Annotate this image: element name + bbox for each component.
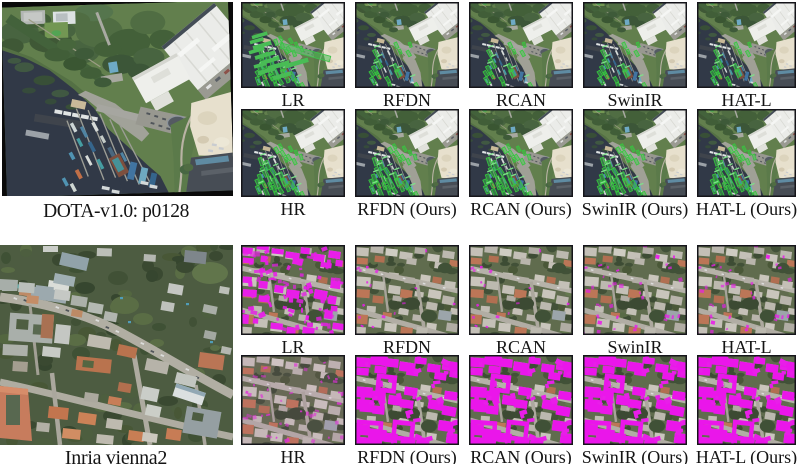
svg-text:RFDN (Ours): RFDN (Ours) [357, 447, 457, 464]
svg-text:HAT-L (Ours): HAT-L (Ours) [696, 447, 797, 464]
svg-text:SwinIR: SwinIR [607, 90, 662, 110]
svg-text:HAT-L (Ours): HAT-L (Ours) [696, 199, 797, 220]
svg-text:HAT-L: HAT-L [721, 90, 771, 110]
svg-text:RCAN (Ours): RCAN (Ours) [470, 199, 572, 220]
svg-text:HR: HR [280, 199, 305, 219]
svg-text:Inria vienna2: Inria vienna2 [65, 447, 167, 464]
svg-text:LR: LR [281, 90, 304, 110]
svg-text:HAT-L: HAT-L [721, 337, 771, 357]
svg-text:DOTA-v1.0: p0128: DOTA-v1.0: p0128 [43, 201, 189, 222]
svg-text:HR: HR [280, 447, 305, 464]
svg-text:RFDN: RFDN [383, 337, 431, 357]
svg-text:SwinIR: SwinIR [607, 337, 662, 357]
svg-text:SwinIR (Ours): SwinIR (Ours) [582, 447, 689, 464]
svg-text:LR: LR [281, 337, 304, 357]
svg-text:RFDN (Ours): RFDN (Ours) [357, 199, 457, 220]
svg-text:RCAN (Ours): RCAN (Ours) [470, 447, 572, 464]
svg-text:SwinIR (Ours): SwinIR (Ours) [582, 199, 689, 220]
svg-text:RFDN: RFDN [383, 90, 431, 110]
svg-text:RCAN: RCAN [496, 337, 546, 357]
svg-text:RCAN: RCAN [496, 90, 546, 110]
